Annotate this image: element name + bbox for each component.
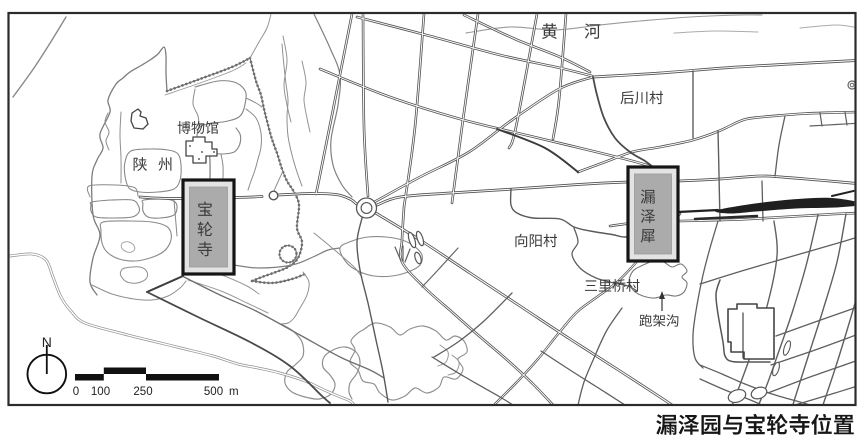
svg-text:100: 100 [91,386,110,398]
svg-text:500: 500 [204,386,223,398]
svg-text:250: 250 [133,386,152,398]
svg-text:0: 0 [73,386,79,398]
svg-text:N: N [42,334,52,350]
svg-text:m: m [229,386,239,398]
